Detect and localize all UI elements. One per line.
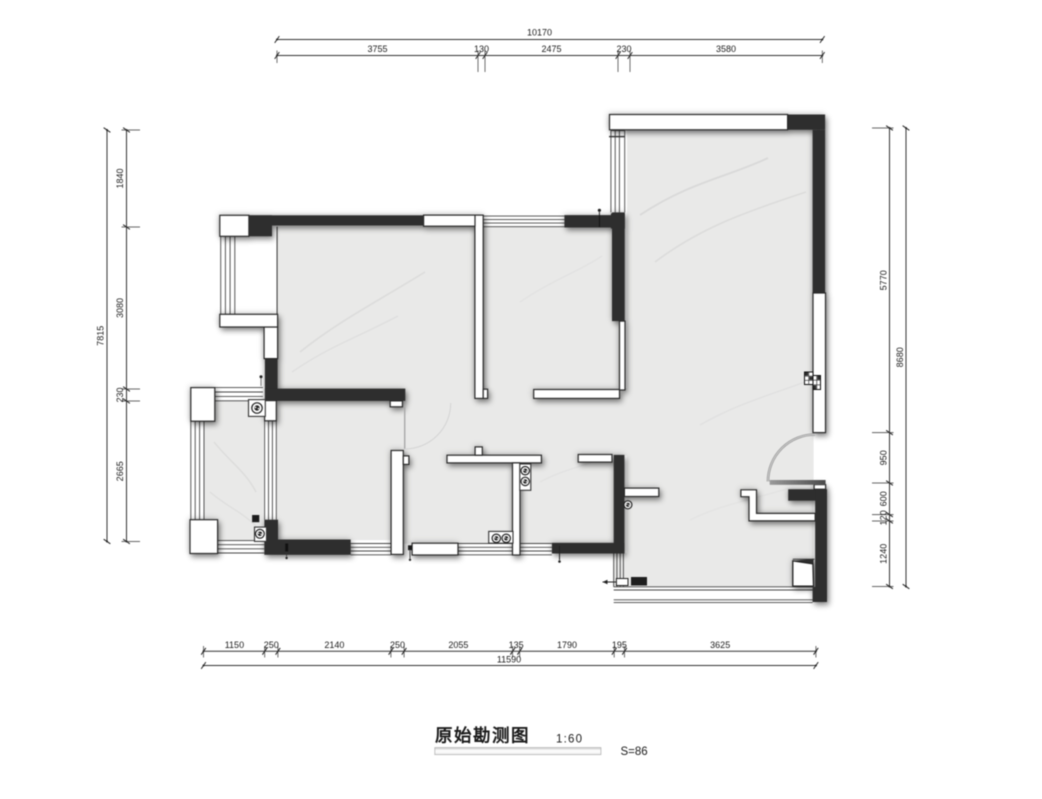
svg-text:8680: 8680 <box>895 347 905 367</box>
svg-text:2140: 2140 <box>324 640 344 650</box>
svg-text:250: 250 <box>264 640 279 650</box>
svg-text:600: 600 <box>878 491 888 506</box>
svg-text:950: 950 <box>878 450 888 465</box>
svg-text:5770: 5770 <box>878 270 888 290</box>
svg-text:3755: 3755 <box>367 44 387 54</box>
svg-text:230: 230 <box>616 44 631 54</box>
svg-text:2665: 2665 <box>115 461 125 481</box>
svg-text:195: 195 <box>612 640 627 650</box>
svg-text:1150: 1150 <box>225 640 244 650</box>
svg-text:10170: 10170 <box>527 28 552 38</box>
svg-text:120: 120 <box>878 510 888 525</box>
svg-text:原始勘测图: 原始勘测图 <box>435 726 530 746</box>
svg-text:1790: 1790 <box>557 640 577 650</box>
svg-text:230: 230 <box>115 387 125 402</box>
svg-text:1240: 1240 <box>878 544 888 564</box>
svg-text:3625: 3625 <box>710 640 730 650</box>
svg-text:S=86: S=86 <box>621 746 648 758</box>
svg-text:2475: 2475 <box>541 44 561 54</box>
svg-text:2055: 2055 <box>448 640 468 650</box>
svg-text:130: 130 <box>474 44 489 54</box>
svg-text:3080: 3080 <box>115 298 125 318</box>
svg-text:1840: 1840 <box>115 168 125 188</box>
svg-text:3580: 3580 <box>716 44 736 54</box>
svg-text:7815: 7815 <box>96 326 106 346</box>
svg-text:135: 135 <box>509 640 524 650</box>
svg-text:1:60: 1:60 <box>556 734 583 746</box>
svg-text:11590: 11590 <box>497 655 521 665</box>
svg-text:250: 250 <box>390 640 405 650</box>
